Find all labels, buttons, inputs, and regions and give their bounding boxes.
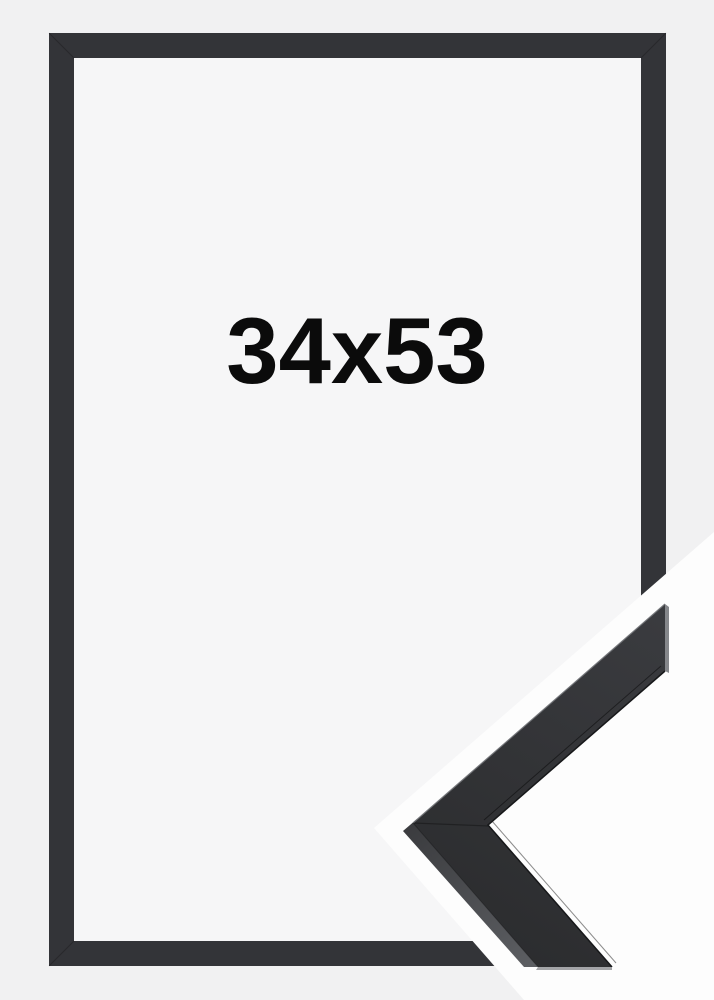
corner-sample-bottom-cut [536,967,612,970]
corner-sample-tip-cut [665,604,669,673]
size-label: 34x53 [226,298,487,403]
frame-product-graphic: 34x53 [0,0,714,1000]
product-image: 34x53 [0,0,714,1000]
